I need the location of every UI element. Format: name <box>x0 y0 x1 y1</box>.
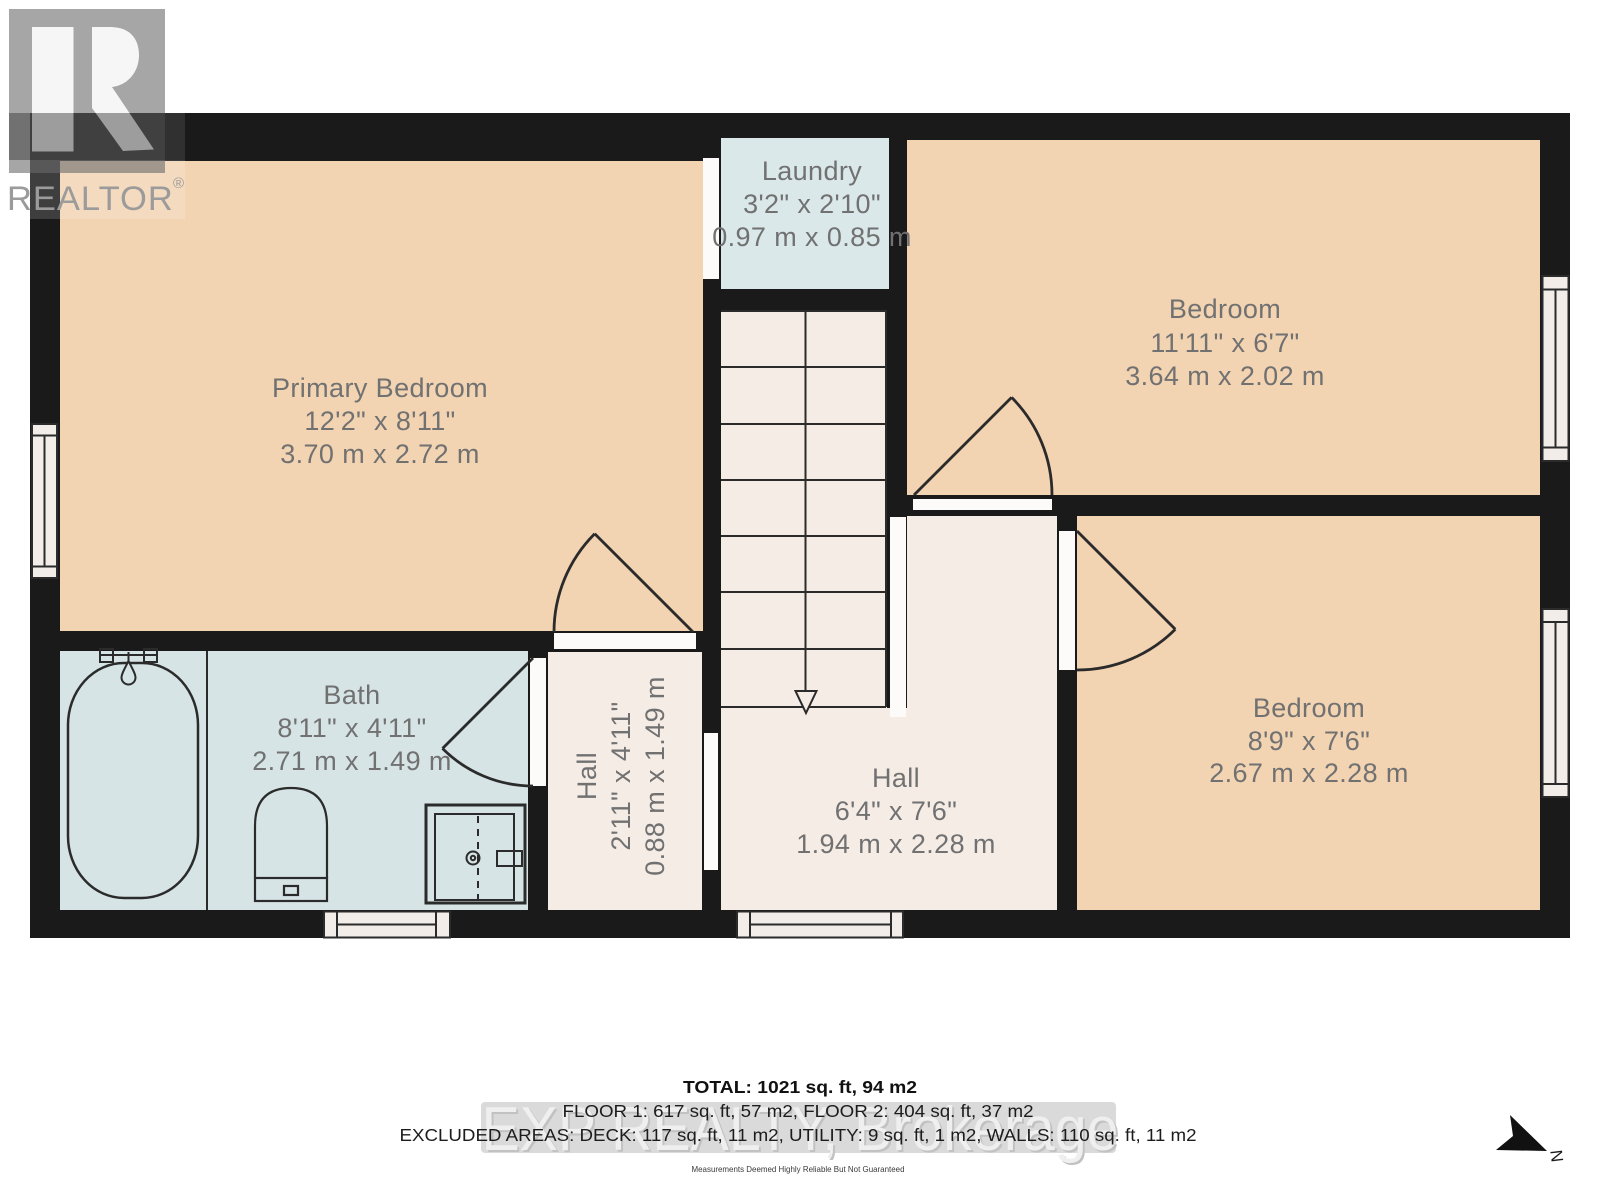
svg-text:0.88 m x 1.49 m: 0.88 m x 1.49 m <box>640 676 670 876</box>
svg-text:1.94 m x 2.28 m: 1.94 m x 2.28 m <box>796 829 996 859</box>
svg-text:3.70 m x 2.72 m: 3.70 m x 2.72 m <box>280 439 480 469</box>
svg-text:2.71 m x 1.49 m: 2.71 m x 1.49 m <box>252 746 452 776</box>
svg-text:2'11" x 4'11": 2'11" x 4'11" <box>606 701 636 850</box>
svg-text:11'11" x 6'7": 11'11" x 6'7" <box>1150 328 1299 358</box>
svg-text:FLOOR 1: 617 sq. ft, 57 m2, FL: FLOOR 1: 617 sq. ft, 57 m2, FLOOR 2: 404… <box>563 1101 1034 1121</box>
svg-text:Hall: Hall <box>572 752 602 800</box>
svg-text:Primary Bedroom: Primary Bedroom <box>272 373 488 403</box>
svg-text:®: ® <box>173 175 184 192</box>
svg-text:REALTOR: REALTOR <box>7 180 174 218</box>
svg-text:Measurements Deemed Highly Rel: Measurements Deemed Highly Reliable But … <box>692 1164 905 1174</box>
svg-text:3'2" x 2'10": 3'2" x 2'10" <box>743 189 881 219</box>
svg-text:EXCLUDED AREAS: DECK: 117 sq.: EXCLUDED AREAS: DECK: 117 sq. ft, 11 m2,… <box>400 1125 1197 1145</box>
svg-text:12'2" x 8'11": 12'2" x 8'11" <box>304 406 455 436</box>
svg-text:Bedroom: Bedroom <box>1253 693 1365 723</box>
svg-text:0.97 m x 0.85 m: 0.97 m x 0.85 m <box>712 222 912 252</box>
svg-text:6'4" x 7'6": 6'4" x 7'6" <box>835 796 957 826</box>
svg-text:2.67 m x 2.28 m: 2.67 m x 2.28 m <box>1209 758 1409 788</box>
svg-text:3.64 m x 2.02 m: 3.64 m x 2.02 m <box>1125 361 1325 391</box>
svg-text:Bath: Bath <box>323 680 380 710</box>
svg-text:Hall: Hall <box>872 763 920 793</box>
svg-text:8'11" x 4'11": 8'11" x 4'11" <box>277 713 426 743</box>
svg-text:N: N <box>1546 1149 1566 1164</box>
svg-text:Bedroom: Bedroom <box>1169 294 1281 324</box>
svg-text:Laundry: Laundry <box>762 156 862 186</box>
svg-text:TOTAL: 1021 sq. ft, 94 m2: TOTAL: 1021 sq. ft, 94 m2 <box>683 1077 917 1097</box>
svg-text:8'9" x 7'6": 8'9" x 7'6" <box>1248 726 1370 756</box>
